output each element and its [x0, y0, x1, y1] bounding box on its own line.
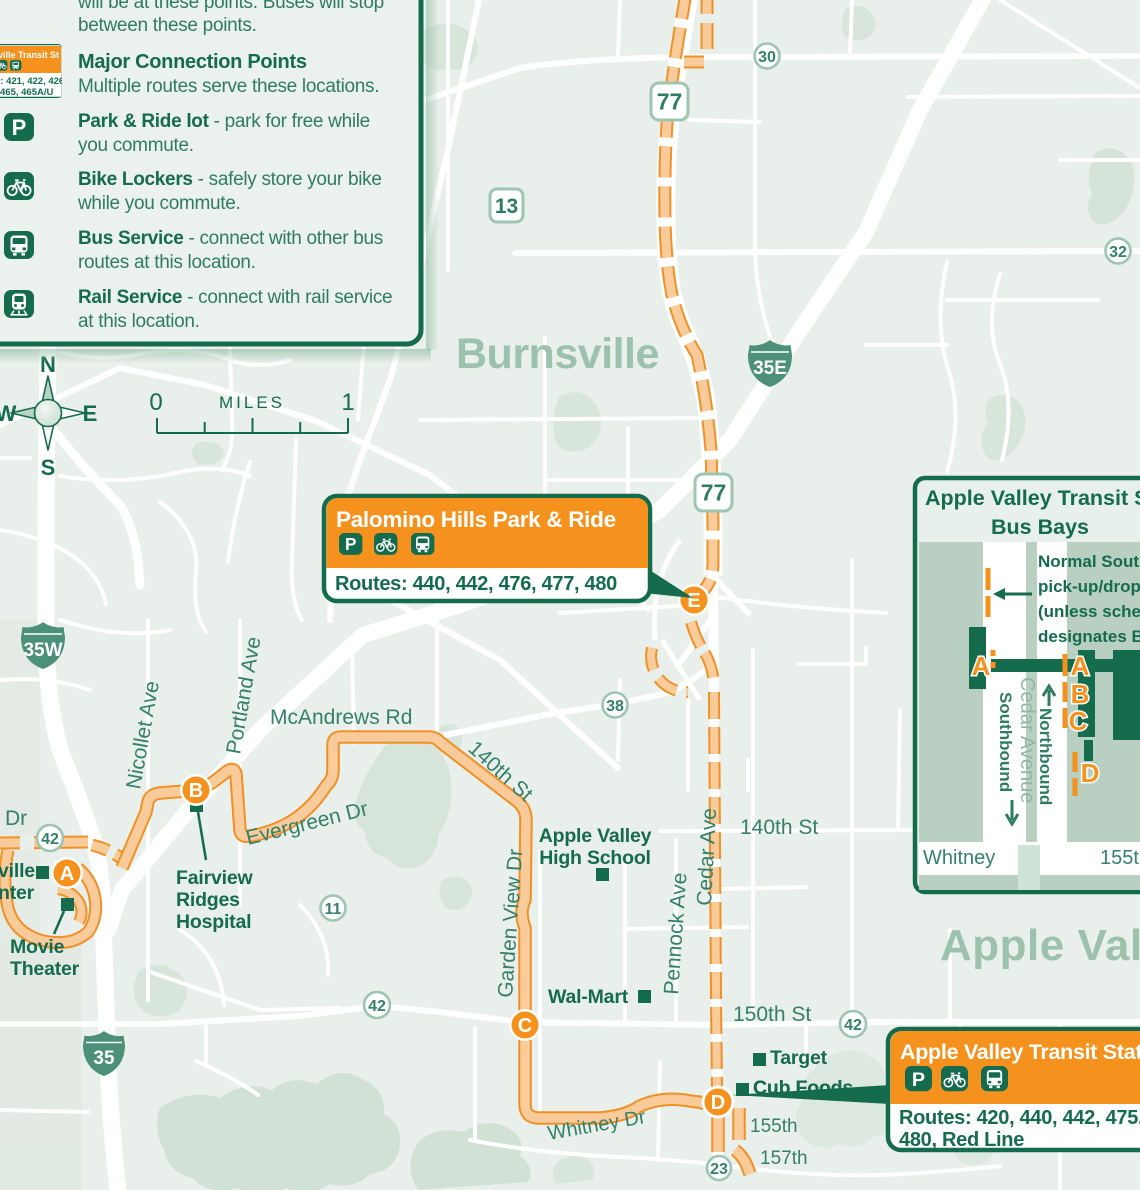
- svg-text:30: 30: [758, 49, 776, 66]
- svg-text:designates B: designates B: [1038, 627, 1140, 646]
- svg-text:McAndrews Rd: McAndrews Rd: [270, 706, 412, 729]
- svg-text:Routes: 440, 442, 476, 477, 48: Routes: 440, 442, 476, 477, 480: [335, 573, 617, 595]
- svg-text:35E: 35E: [753, 358, 787, 379]
- svg-text:1: 1: [341, 389, 354, 416]
- svg-text:ville: ville: [0, 860, 35, 882]
- svg-text:Dr: Dr: [5, 807, 27, 830]
- svg-text:B: B: [189, 780, 203, 802]
- svg-text:42: 42: [368, 998, 386, 1015]
- svg-text:157th: 157th: [760, 1148, 808, 1169]
- svg-text:routes at this location.: routes at this location.: [78, 252, 256, 273]
- svg-text:Cub Foods: Cub Foods: [753, 1077, 853, 1099]
- svg-text:(unless sche: (unless sche: [1038, 602, 1140, 621]
- svg-text:Movie: Movie: [10, 936, 65, 958]
- svg-text:480, Red Line: 480, Red Line: [899, 1129, 1024, 1151]
- svg-text:while you commute.: while you commute.: [77, 193, 241, 214]
- svg-text:140th St: 140th St: [740, 816, 818, 839]
- svg-text:23: 23: [710, 1161, 728, 1178]
- svg-text:Apple Valley Transit Station: Apple Valley Transit Station: [900, 1040, 1140, 1064]
- svg-text:35W: 35W: [23, 640, 62, 661]
- svg-text:Park & Ride lot - park for fre: Park & Ride lot - park for free while: [78, 111, 370, 132]
- svg-text:Wal-Mart: Wal-Mart: [548, 986, 629, 1008]
- svg-text:Apple Valley: Apple Valley: [539, 825, 652, 847]
- svg-text:Hospital: Hospital: [176, 911, 251, 933]
- svg-text:Fairview: Fairview: [176, 867, 253, 889]
- svg-text:A: A: [1071, 651, 1090, 681]
- svg-text:High School: High School: [539, 847, 651, 869]
- svg-text:C: C: [518, 1015, 532, 1037]
- svg-text:sville Transit St: sville Transit St: [0, 50, 59, 60]
- svg-text:77: 77: [657, 89, 683, 115]
- svg-text:E: E: [687, 590, 700, 612]
- svg-text:42: 42: [844, 1017, 862, 1034]
- svg-text:32: 32: [1109, 244, 1127, 261]
- svg-text:Southbound: Southbound: [996, 692, 1015, 792]
- svg-text:will be at these points. Buses: will be at these points. Buses will stop: [77, 0, 384, 13]
- svg-text:between these points.: between these points.: [78, 15, 257, 36]
- svg-text:Whitney: Whitney: [923, 847, 995, 869]
- svg-text:38: 38: [606, 698, 624, 715]
- svg-text:Routes: 420, 440, 442, 475,: Routes: 420, 440, 442, 475,: [899, 1107, 1140, 1129]
- svg-text:Palomino Hills Park & Ride: Palomino Hills Park & Ride: [336, 507, 616, 532]
- svg-text:Cedar Avenue: Cedar Avenue: [1016, 677, 1038, 803]
- svg-text:Multiple routes serve these lo: Multiple routes serve these locations.: [78, 76, 379, 97]
- svg-text:Apple Valley: Apple Valley: [940, 921, 1140, 970]
- svg-text:Bus Service - connect with oth: Bus Service - connect with other bus: [78, 228, 383, 249]
- svg-text:MILES: MILES: [219, 393, 285, 412]
- svg-text:13: 13: [495, 195, 518, 218]
- svg-text:Theater: Theater: [10, 958, 80, 980]
- svg-text:77: 77: [701, 480, 727, 506]
- svg-text:A: A: [972, 651, 991, 681]
- svg-text:Major Connection Points: Major Connection Points: [78, 51, 307, 73]
- svg-text:E: E: [83, 401, 98, 426]
- svg-text:A: A: [60, 863, 74, 885]
- svg-text:155th: 155th: [1100, 847, 1140, 869]
- svg-text:you commute.: you commute.: [78, 135, 194, 156]
- svg-text:Rail Service - connect with ra: Rail Service - connect with rail service: [78, 287, 392, 308]
- svg-text:Burnsville: Burnsville: [456, 330, 659, 378]
- svg-text:Bike Lockers - safely store yo: Bike Lockers - safely store your bike: [78, 169, 382, 190]
- svg-text:C: C: [1069, 706, 1088, 736]
- svg-text:465, 465A/U: 465, 465A/U: [0, 87, 53, 98]
- svg-text:Apple Valley Transit Sta: Apple Valley Transit Sta: [925, 486, 1140, 510]
- svg-text:W: W: [0, 401, 17, 426]
- svg-text:155th: 155th: [750, 1116, 798, 1137]
- svg-text:11: 11: [325, 901, 342, 918]
- svg-text:D: D: [711, 1092, 725, 1114]
- svg-text:pick-up/drop: pick-up/drop: [1038, 577, 1140, 596]
- svg-text:B: B: [1071, 679, 1090, 709]
- svg-text:0: 0: [149, 389, 162, 416]
- svg-text:Northbound: Northbound: [1036, 708, 1055, 805]
- svg-text:42: 42: [41, 831, 59, 848]
- svg-text:Normal South: Normal South: [1038, 552, 1140, 571]
- svg-text:Target: Target: [770, 1047, 828, 1069]
- svg-text:150th St: 150th St: [733, 1003, 811, 1026]
- svg-text:D: D: [1081, 758, 1100, 788]
- svg-text:Ridges: Ridges: [176, 889, 240, 911]
- svg-text:nter: nter: [0, 882, 35, 904]
- svg-text:S: S: [41, 455, 56, 480]
- svg-text:Bus Bays: Bus Bays: [991, 515, 1089, 539]
- svg-text:35: 35: [93, 1048, 115, 1069]
- svg-text:at this location.: at this location.: [78, 311, 200, 332]
